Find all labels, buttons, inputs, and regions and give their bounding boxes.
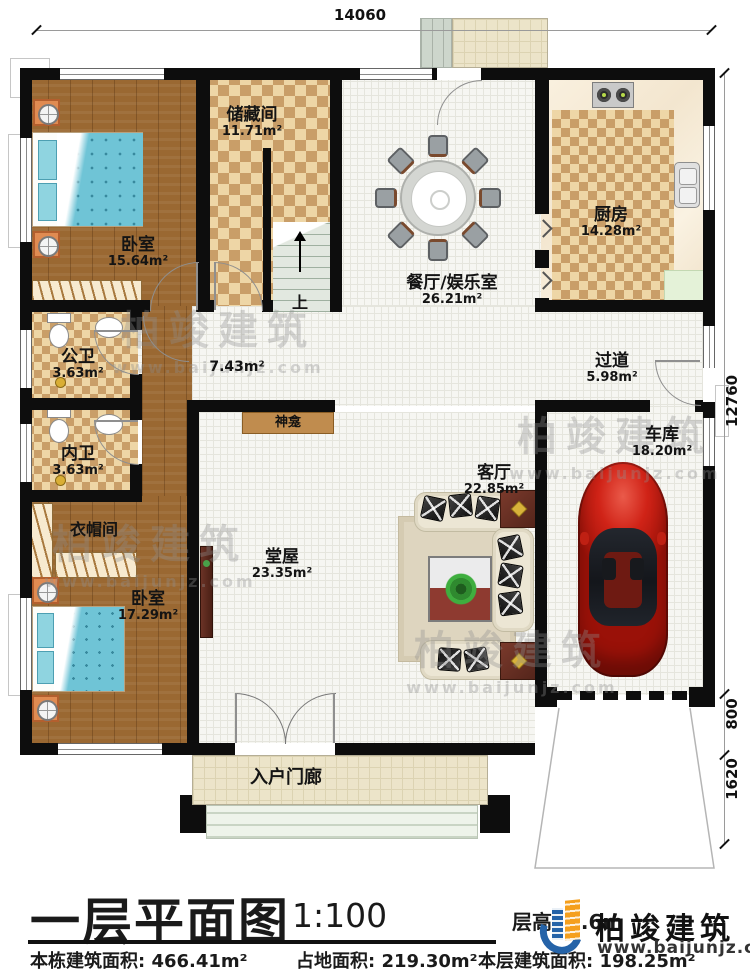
room-label-entry-porch: 入户门廊 [250, 768, 322, 788]
shrine-label: 神龛 [275, 415, 301, 430]
door-leaf [333, 693, 335, 743]
corridor-floor [136, 306, 541, 406]
room-label-bedroom2: 卧室 17.29m² [118, 590, 178, 624]
entry-porch-floor [192, 755, 488, 805]
land-area: 占地面积: 219.30m² [296, 947, 478, 973]
room-label-kitchen: 厨房 14.28m² [581, 206, 641, 240]
title-underline [28, 940, 496, 944]
room-label-cloakroom: 衣帽间 [70, 521, 118, 539]
wall [263, 148, 271, 306]
door-leaf [196, 262, 198, 310]
dining-chair [479, 188, 501, 208]
stairs-up-label: 上 [292, 294, 308, 312]
sofa-cushion [497, 534, 524, 561]
driveway [527, 700, 722, 872]
room-label-dining: 餐厅/娱乐室 26.21m² [406, 274, 497, 308]
staircase-arrow-head [294, 231, 306, 241]
nightstand [32, 695, 59, 722]
door-leaf [655, 360, 700, 362]
kitchen-mat [664, 270, 706, 302]
side-table [500, 642, 538, 680]
wall [535, 300, 715, 312]
nightstand [32, 577, 59, 604]
dining-chair [428, 239, 448, 261]
building-total-area: 本栋建筑面积: 466.41m² [30, 947, 248, 973]
pillow [37, 613, 54, 648]
dining-chair [375, 188, 397, 208]
window [20, 138, 32, 242]
bed-2 [32, 606, 125, 692]
room-label-inner-bath: 内卫 3.63m² [52, 445, 103, 479]
kitchen-sink [674, 162, 700, 208]
nightstand [33, 99, 60, 126]
wall [130, 312, 142, 330]
pillow [37, 651, 54, 684]
sink-basin [679, 187, 697, 204]
wall [330, 68, 342, 312]
door-leaf [214, 262, 216, 310]
toilet-bowl [49, 324, 69, 348]
room-label-main-hall: 堂屋 23.35m² [252, 548, 312, 582]
dim-line-top [36, 30, 712, 31]
nightstand [33, 231, 60, 258]
round-table [400, 160, 476, 236]
wall [20, 490, 142, 502]
window [58, 743, 162, 755]
wall [187, 400, 199, 743]
sofa-cushion [498, 591, 524, 617]
sink-basin [679, 168, 697, 185]
door-leaf [235, 693, 237, 743]
potted-plant [444, 572, 478, 606]
car-mirror [580, 532, 589, 545]
window [703, 326, 715, 368]
sofa-cushion [474, 495, 500, 521]
window [60, 68, 164, 80]
garage-door [557, 691, 689, 700]
shrine-cabinet: 神龛 [242, 412, 334, 434]
car [578, 462, 668, 677]
dim-top-value: 14060 [334, 6, 386, 24]
wall [20, 398, 142, 410]
logo: 柏竣建筑 www.baijunjz.com [540, 898, 740, 962]
burner-dot [621, 93, 625, 97]
pillow [38, 183, 57, 221]
wall [262, 300, 273, 312]
dining-set [378, 138, 498, 258]
burner-dot [602, 93, 606, 97]
dim-right-lower-value: 1620 [723, 755, 741, 803]
room-label-living: 客厅 22.85m² [464, 464, 524, 498]
tv-plant [203, 560, 210, 567]
room-label-bedroom1: 卧室 15.64m² [108, 236, 168, 270]
window [360, 68, 432, 80]
car-mirror [657, 532, 666, 545]
wall [20, 300, 150, 312]
room-label-public-bath: 公卫 3.63m² [52, 348, 103, 382]
window [20, 424, 32, 482]
toilet-tank [47, 313, 71, 323]
room-label-garage: 车库 18.20m² [632, 426, 692, 460]
sofa-cushion [420, 495, 447, 522]
back-porch [452, 18, 548, 68]
door-leaf [94, 330, 138, 332]
window [703, 418, 715, 466]
sofa-cushion [437, 647, 462, 672]
dim-right-upper-value: 12760 [723, 373, 741, 429]
wardrobe [55, 552, 137, 578]
pillow [38, 140, 57, 180]
wall [547, 400, 650, 412]
logo-url: www.baijunjz.com [597, 938, 750, 958]
back-porch-steps [420, 18, 452, 68]
wall [535, 68, 549, 214]
door-leaf [94, 420, 138, 422]
car-seat [602, 558, 616, 580]
table-center [430, 190, 450, 210]
sheet-fold [54, 607, 88, 691]
sheet-fold [57, 133, 97, 226]
room-label-hallway: 过道 5.98m² [586, 352, 637, 386]
door-gap [437, 68, 481, 80]
stove [592, 82, 634, 108]
logo-tower-blue [552, 908, 563, 940]
wall [535, 250, 549, 268]
entry-porch-steps [206, 805, 478, 839]
room-label-storage: 储藏间 11.71m² [222, 106, 282, 140]
toilet-bowl [49, 419, 69, 443]
staircase-arrow [299, 240, 301, 272]
sofa-cushion [463, 646, 490, 673]
floor-plan-canvas: 神龛 柏竣建筑 www.baijunjz.com 柏竣建筑 www.baijun… [0, 0, 750, 974]
wall [535, 400, 547, 695]
room-label-corridor: 7.43m² [209, 360, 264, 376]
wall [335, 743, 535, 755]
wardrobe [30, 503, 53, 580]
sofa-cushion [497, 562, 524, 589]
door-gap [703, 368, 715, 402]
dim-right-mid-value: 800 [723, 694, 741, 734]
logo-tower-orange [565, 899, 580, 941]
window [20, 330, 32, 388]
wall [187, 400, 335, 412]
window [20, 598, 32, 690]
logo-building-icon [540, 898, 590, 958]
window [703, 126, 715, 210]
plan-scale: 1:100 [292, 896, 387, 935]
dining-chair [428, 135, 448, 157]
wall [130, 374, 142, 420]
car-seat [630, 558, 644, 580]
bed-1 [32, 132, 143, 227]
